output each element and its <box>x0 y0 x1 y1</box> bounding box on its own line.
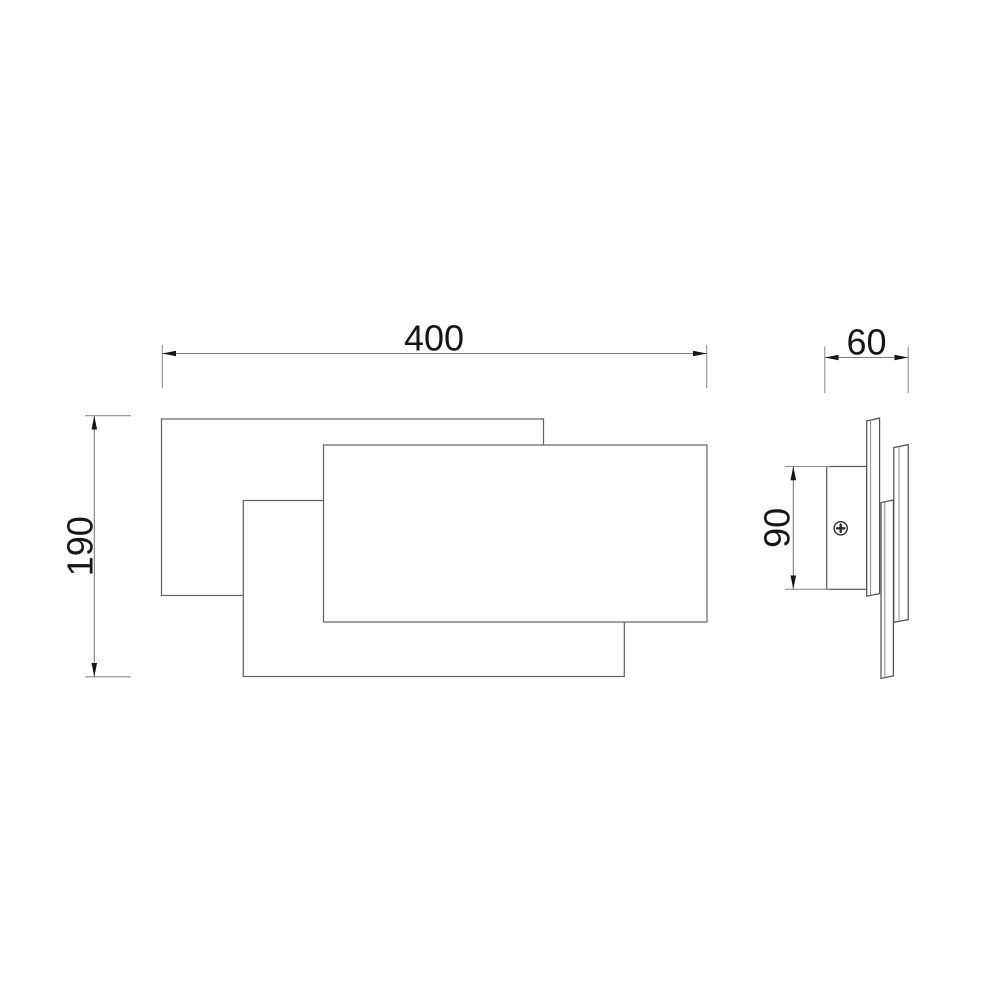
arrow-up-icon <box>791 467 797 481</box>
dimension-overall-width: 400 <box>162 318 706 389</box>
side-panel-middle <box>881 500 893 678</box>
arrow-right-icon <box>895 355 909 361</box>
side-panel-back <box>867 418 880 596</box>
technical-drawing: 400 190 <box>0 0 1000 1000</box>
arrow-down-icon <box>92 663 98 677</box>
side-view <box>827 418 909 678</box>
dimension-bracket-height: 90 <box>757 467 830 590</box>
screw-head-icon <box>834 522 847 535</box>
arrow-right-icon <box>693 351 707 357</box>
arrow-down-icon <box>791 576 797 590</box>
dim-label-height: 190 <box>60 516 101 576</box>
dim-label-width: 400 <box>404 318 464 359</box>
dim-label-depth: 60 <box>846 322 886 363</box>
front-view <box>162 419 708 677</box>
dimension-overall-height: 190 <box>60 416 132 677</box>
side-panel-front <box>894 445 908 623</box>
dimension-overall-depth: 60 <box>825 322 908 394</box>
panel-front-rect <box>324 445 708 622</box>
arrow-left-icon <box>825 355 839 361</box>
drawing-canvas: 400 190 <box>0 0 1000 1000</box>
dim-label-bracket-height: 90 <box>757 508 798 548</box>
arrow-left-icon <box>162 351 176 357</box>
arrow-up-icon <box>92 416 98 430</box>
